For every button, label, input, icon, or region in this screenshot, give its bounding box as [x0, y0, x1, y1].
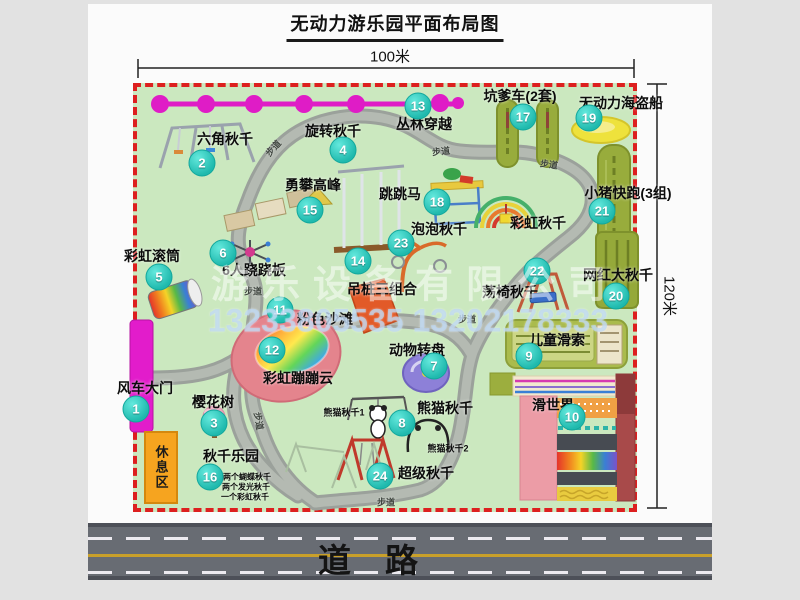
rest-area: 休息区: [144, 431, 178, 504]
page-title: 无动力游乐园平面布局图: [287, 10, 504, 42]
screenshot-root: { "title": "无动力游乐园平面布局图", "dimensions": …: [0, 0, 800, 600]
park-area: [133, 83, 637, 512]
dimension-right-label: 120米: [660, 276, 681, 316]
road-label: 道路: [318, 534, 452, 582]
dimension-top-label: 100米: [370, 46, 410, 67]
